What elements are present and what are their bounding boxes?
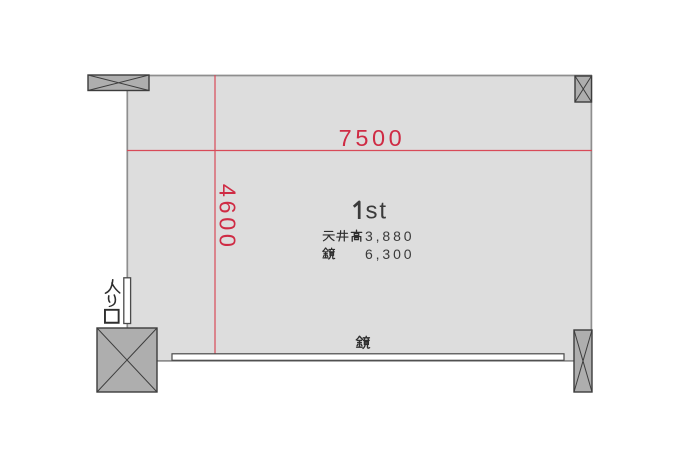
svg-text:st: st xyxy=(366,198,388,225)
svg-text:4600: 4600 xyxy=(215,184,241,251)
svg-text:3,880: 3,880 xyxy=(365,228,415,244)
svg-text:7500: 7500 xyxy=(339,125,406,151)
svg-text:6,300: 6,300 xyxy=(365,246,415,262)
